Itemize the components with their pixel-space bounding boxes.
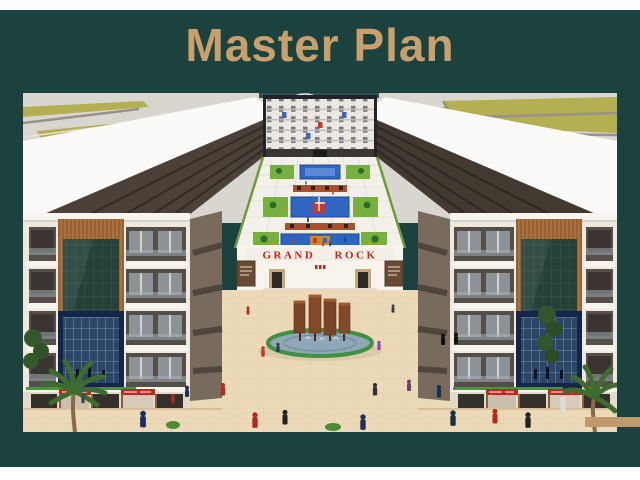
right-building — [418, 211, 617, 410]
slide-title: Master Plan — [0, 18, 640, 72]
master-plan-slide: Master Plan — [0, 0, 640, 480]
architectural-render: GRAND ROCK — [23, 93, 617, 432]
courtyard — [235, 157, 405, 248]
left-building — [23, 211, 222, 410]
accent-bar — [585, 417, 640, 427]
entrance-gate: GRAND ROCK — [237, 245, 403, 291]
master-plan-render-image: GRAND ROCK — [23, 93, 617, 432]
grand-rock-sign-text: GRAND ROCK — [262, 250, 377, 262]
far-building — [263, 95, 377, 157]
